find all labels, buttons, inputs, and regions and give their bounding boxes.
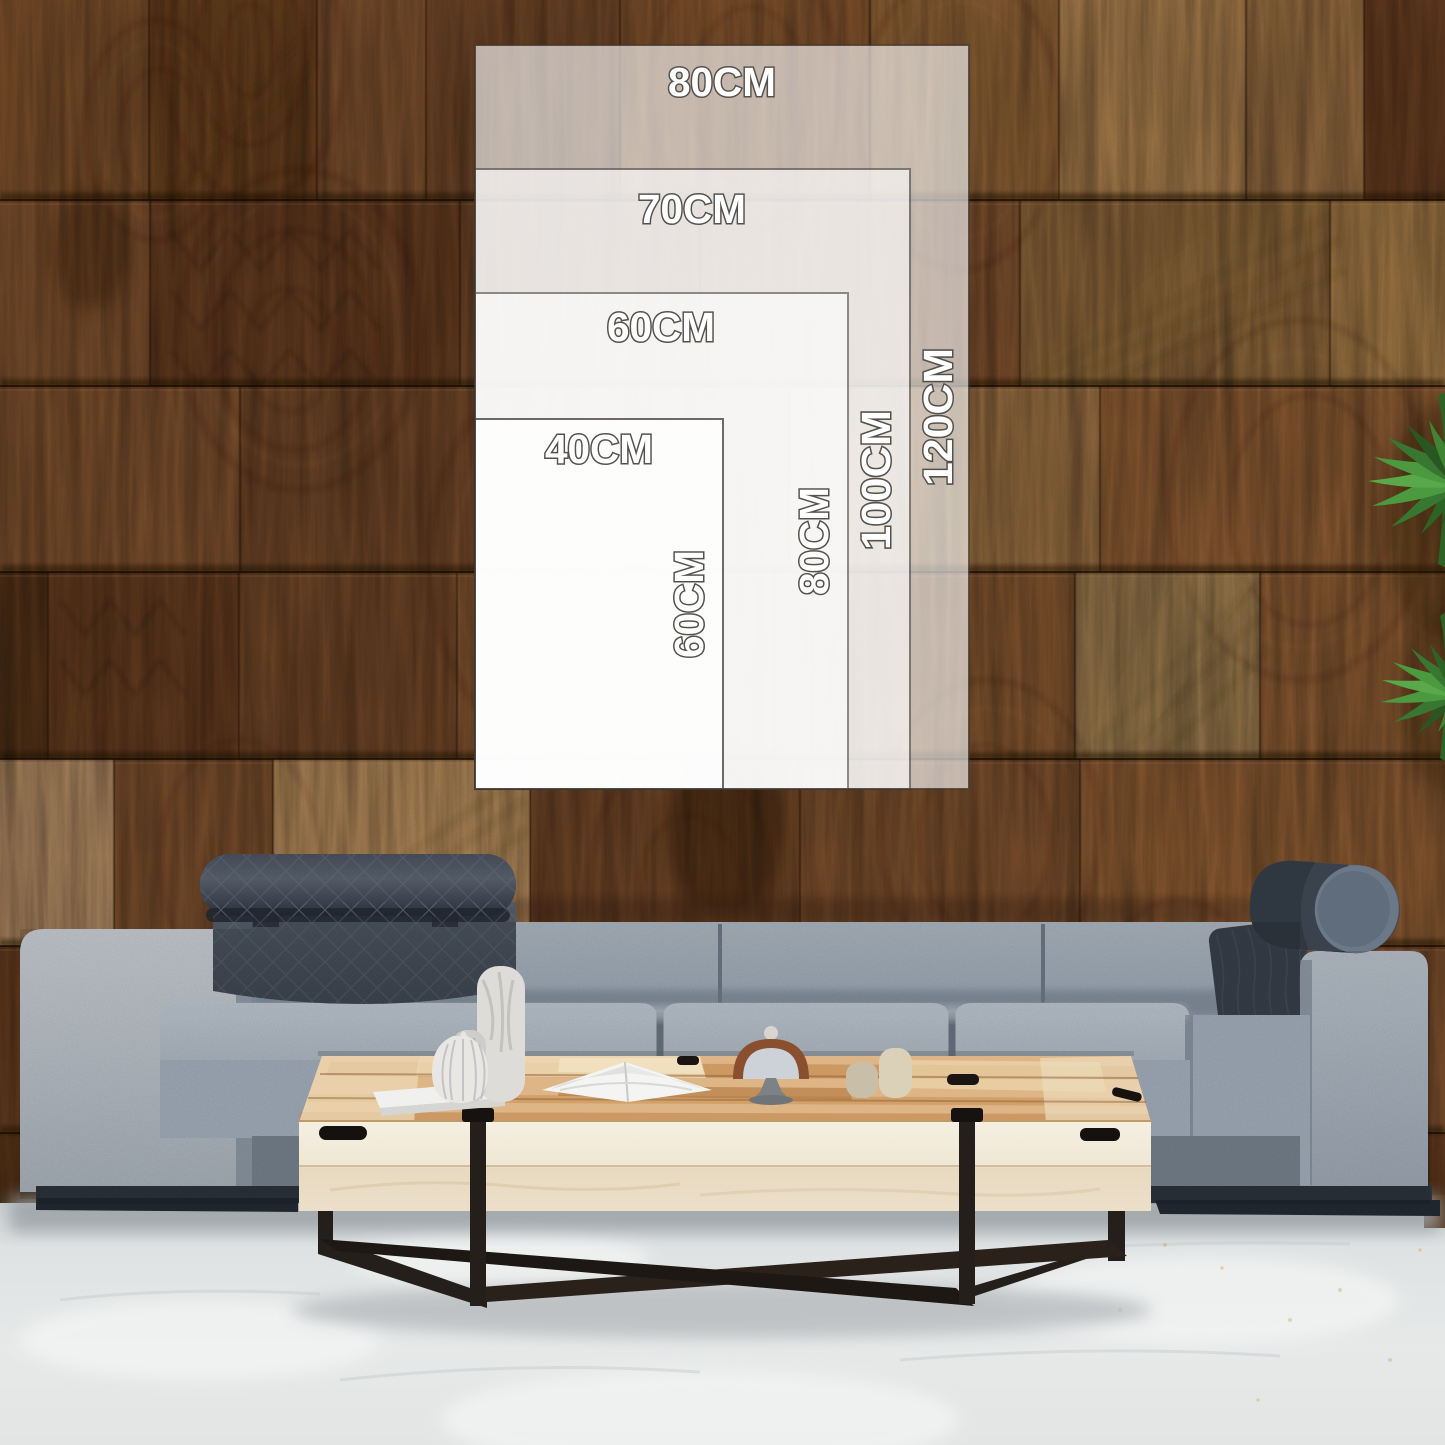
svg-text:80CM: 80CM — [668, 59, 776, 105]
svg-text:80CM: 80CM — [791, 487, 837, 595]
svg-text:70CM: 70CM — [638, 186, 746, 232]
svg-text:60CM: 60CM — [666, 550, 712, 658]
svg-text:60CM: 60CM — [607, 304, 715, 350]
svg-text:120CM: 120CM — [915, 348, 961, 486]
svg-text:100CM: 100CM — [853, 410, 899, 550]
svg-text:40CM: 40CM — [545, 426, 653, 472]
